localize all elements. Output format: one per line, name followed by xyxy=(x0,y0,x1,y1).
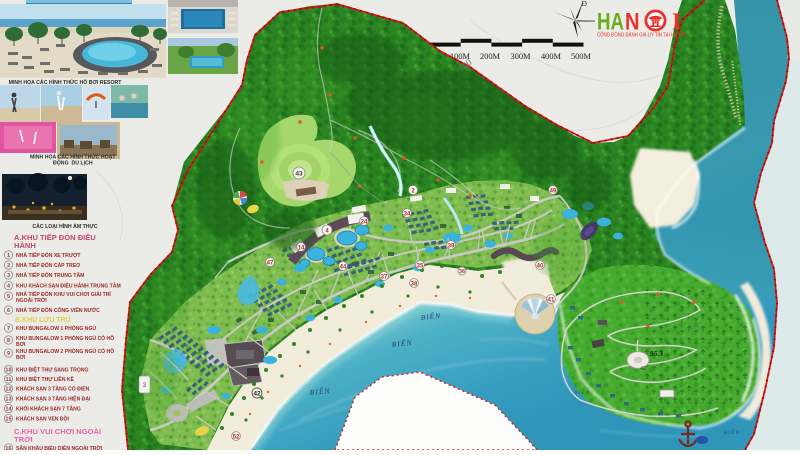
svg-text:10: 10 xyxy=(5,368,11,374)
svg-text:KHU BUNGALOW 1 PHÒNG NGỦ CÓ HỒ: KHU BUNGALOW 1 PHÒNG NGỦ CÓ HỒ xyxy=(16,334,114,342)
svg-text:3: 3 xyxy=(7,273,10,279)
svg-text:NHÀ TIẾP ĐÓN CÔNG VIÊN NƯỚC: NHÀ TIẾP ĐÓN CÔNG VIÊN NƯỚC xyxy=(16,306,100,314)
svg-text:KHU BUNGALOW 1 PHÒNG NGỦ: KHU BUNGALOW 1 PHÒNG NGỦ xyxy=(16,324,96,332)
svg-text:KHÁCH SẠN VEN ĐỒI: KHÁCH SẠN VEN ĐỒI xyxy=(16,416,70,423)
svg-text:2: 2 xyxy=(7,263,10,269)
svg-text:KHU BIỆT THỰ LIỀN KỀ: KHU BIỆT THỰ LIỀN KỀ xyxy=(16,375,75,383)
svg-text:16: 16 xyxy=(5,446,11,450)
svg-text:NHÀ TIẾP ĐÓN KHU VUI CHƠI GIẢI: NHÀ TIẾP ĐÓN KHU VUI CHƠI GIẢI TRÍ xyxy=(16,290,111,298)
svg-text:KHÁCH SẠN 3 TẦNG CỔ ĐIỂN: KHÁCH SẠN 3 TẦNG CỔ ĐIỂN xyxy=(16,386,90,393)
svg-text:NGOÀI TRỜI: NGOÀI TRỜI xyxy=(16,296,47,304)
svg-text:KHU KHÁCH SẠN ĐIỀU HÀNH TRUNG: KHU KHÁCH SẠN ĐIỀU HÀNH TRUNG TÂM xyxy=(16,283,121,290)
svg-text:14: 14 xyxy=(5,407,12,413)
svg-text:6: 6 xyxy=(7,308,10,314)
svg-text:KHU BUNGALOW 2 PHÒNG NGỦ CÓ HỒ: KHU BUNGALOW 2 PHÒNG NGỦ CÓ HỒ xyxy=(16,347,114,355)
svg-text:5: 5 xyxy=(7,294,10,300)
svg-text:15: 15 xyxy=(5,417,11,423)
svg-text:KHỐI KHÁCH SẠN 7 TẦNG: KHỐI KHÁCH SẠN 7 TẦNG xyxy=(16,406,81,413)
svg-text:NHÀ TIẾP ĐÓN TRUNG TÂM: NHÀ TIẾP ĐÓN TRUNG TÂM xyxy=(16,271,84,279)
svg-text:13: 13 xyxy=(5,397,11,403)
svg-text:11: 11 xyxy=(6,377,12,383)
svg-text:7: 7 xyxy=(7,326,10,332)
svg-text:4: 4 xyxy=(7,284,11,290)
svg-text:9: 9 xyxy=(7,351,10,357)
svg-text:1: 1 xyxy=(7,253,10,259)
svg-text:NHÀ TIẾP ĐÓN CÁP TREO: NHÀ TIẾP ĐÓN CÁP TREO xyxy=(16,261,80,269)
svg-text:8: 8 xyxy=(7,338,10,344)
svg-text:BƠI: BƠI xyxy=(16,355,26,361)
svg-text:12: 12 xyxy=(5,387,11,393)
svg-text:SÂN KHẤU BIỂU DIỄN NGOÀI TRỜI: SÂN KHẤU BIỂU DIỄN NGOÀI TRỜI xyxy=(16,444,103,450)
svg-text:BƠI: BƠI xyxy=(16,342,26,348)
svg-text:NHÀ TIẾP ĐÓN XE TRƯỢT: NHÀ TIẾP ĐÓN XE TRƯỢT xyxy=(16,251,81,259)
svg-text:KHU BIỆT THỰ SANG TRỌNG: KHU BIỆT THỰ SANG TRỌNG xyxy=(16,366,88,374)
svg-text:KHÁCH SẠN 3 TẦNG HIỆN ĐẠI: KHÁCH SẠN 3 TẦNG HIỆN ĐẠI xyxy=(16,395,91,403)
